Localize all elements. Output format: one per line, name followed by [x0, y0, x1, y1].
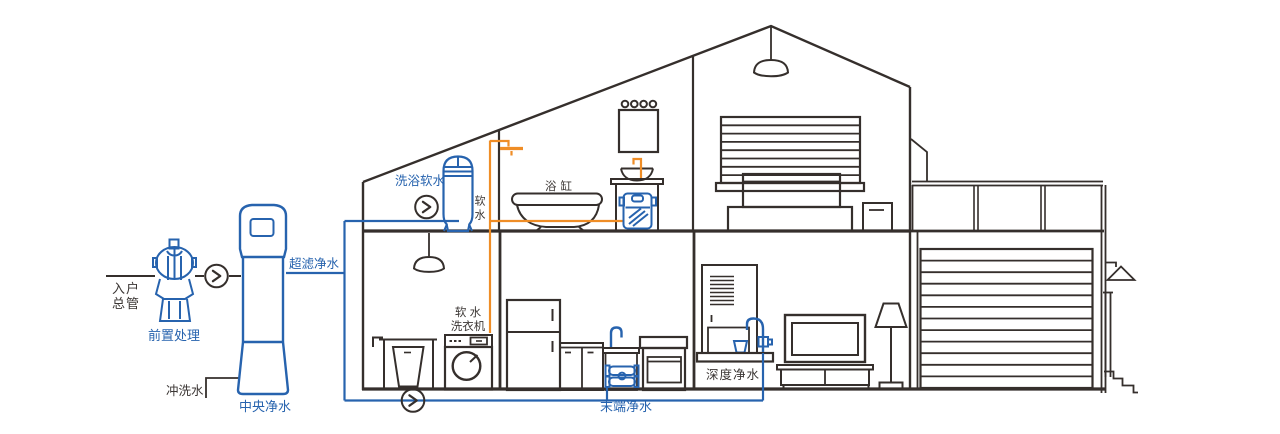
tv-stand [777, 365, 873, 390]
label-main-inlet-line2: 总管 [112, 296, 140, 311]
oven [640, 337, 687, 390]
outdoor-lamp [1105, 263, 1135, 281]
label-ultrafiltration: 超滤净水 [289, 257, 339, 272]
ro-filter-device [606, 366, 639, 388]
pre-filter-device [153, 240, 196, 322]
bathtub [512, 194, 602, 232]
kitchen [507, 300, 687, 390]
laundry-sink [373, 338, 437, 390]
soft-water-pipe [490, 141, 624, 334]
dispenser-counter [697, 353, 773, 362]
dispenser-faucet [747, 319, 772, 353]
exterior [1103, 263, 1138, 393]
window-blinds [716, 117, 864, 191]
dispenser-vents [710, 277, 734, 305]
entry-steps [1104, 372, 1138, 393]
label-main-inlet-line1: 入户 [112, 281, 140, 296]
pendant-lamp-bedroom [754, 27, 788, 76]
purified-water-pipe [286, 221, 763, 401]
water-cup [734, 341, 747, 353]
label-main-inlet: 入户 总管 [112, 281, 140, 311]
diagram-canvas [0, 0, 1280, 434]
floor-lamp [876, 304, 907, 390]
washing-machine [445, 335, 492, 390]
label-bathtub: 浴缸 [545, 180, 576, 195]
central-purifier-device [238, 205, 288, 394]
bathroom [512, 101, 663, 231]
vanity-filter-device [620, 194, 657, 229]
garage-door [921, 249, 1093, 388]
label-soft-water-washer: 软 水 洗衣机 [443, 307, 493, 334]
terrace-door [911, 139, 927, 181]
fridge [507, 300, 560, 390]
tv [785, 315, 865, 362]
water-purification-diagram: 入户 总管 前置处理 超滤净水 冲洗水 中央净水 洗浴软水 软水 浴缸 软 水 … [0, 0, 1280, 434]
terrace-railing [912, 182, 1103, 232]
label-soft-water-washer-line1: 软 水 [443, 307, 493, 321]
garage [912, 182, 1106, 394]
label-pre-treatment: 前置处理 [148, 328, 200, 343]
label-terminal-purification: 末端净水 [600, 399, 652, 414]
bedroom [716, 27, 892, 231]
drain-pipe [1103, 293, 1113, 378]
label-flush-water: 冲洗水 [166, 384, 204, 399]
mirror [619, 110, 658, 152]
label-soft-water: 软水 [471, 195, 486, 223]
flow-direction-icon [415, 196, 438, 219]
flush-drain-pipe [206, 378, 240, 398]
label-soft-water-washer-line2: 洗衣机 [443, 321, 493, 335]
water-softener-tank [444, 157, 473, 232]
flow-direction-icon [205, 265, 228, 288]
pendant-lamp-laundry [414, 233, 444, 272]
kitchen-faucet [611, 328, 622, 348]
nightstand [863, 203, 892, 231]
window-sill [716, 183, 864, 191]
living-room [777, 304, 907, 391]
kitchen-cabinets [560, 343, 603, 390]
label-central-purification: 中央净水 [239, 399, 291, 414]
mirror-lights [622, 101, 657, 108]
label-bath-soft-water: 洗浴软水 [395, 174, 445, 189]
label-deep-purification: 深度净水 [706, 368, 760, 383]
shower-head [500, 149, 523, 156]
